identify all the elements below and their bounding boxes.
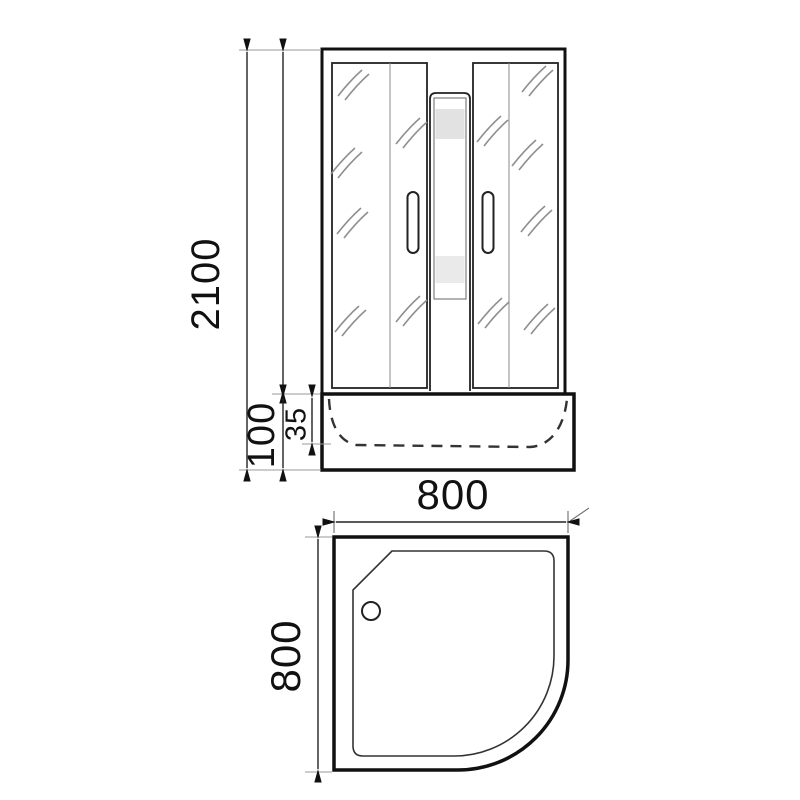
center-column — [430, 93, 470, 391]
technical-drawing-canvas: 2100 100 35 800 800 — [0, 0, 800, 800]
column-band-top — [436, 109, 465, 139]
tray-front — [322, 394, 574, 470]
drain-hole — [362, 602, 380, 620]
tray-inner-contour — [353, 551, 554, 756]
column-band-bottom — [436, 256, 465, 283]
dim-label-width: 800 — [416, 474, 489, 516]
plan-view — [334, 537, 568, 770]
dim-label-tray-rim-depth: 35 — [283, 407, 312, 441]
drawing-linework — [0, 0, 800, 800]
dim-label-depth: 800 — [265, 619, 307, 692]
front-elevation-view — [322, 49, 574, 470]
right-door-handle — [483, 192, 494, 253]
left-door-handle — [408, 192, 419, 253]
dim-label-tray-height: 100 — [243, 402, 281, 468]
dim-label-overall-height: 2100 — [186, 238, 226, 331]
